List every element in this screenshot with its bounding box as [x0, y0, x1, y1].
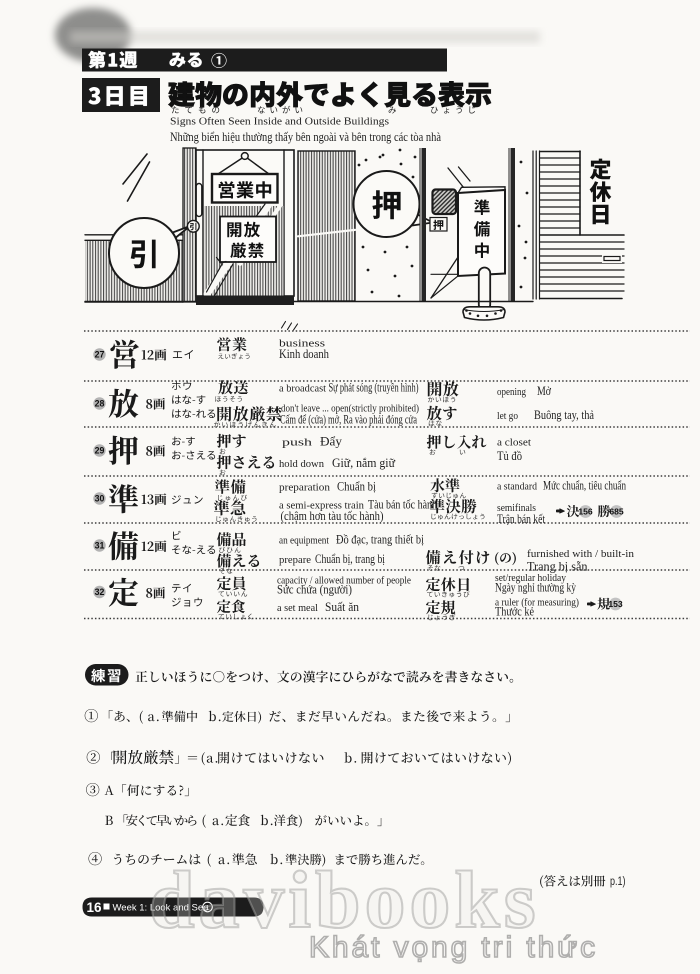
svg-text:156: 156	[578, 507, 593, 517]
svg-text:27: 27	[95, 350, 105, 360]
svg-text:Những biển hiệu thường thấy bê: Những biển hiệu thường thấy bên ngoài và…	[170, 130, 441, 144]
svg-text:p.1): p.1)	[610, 876, 626, 888]
svg-text:Sức chứa (người): Sức chứa (người)	[277, 583, 352, 597]
svg-text:a closet: a closet	[497, 437, 531, 449]
svg-text:preparation: preparation	[279, 482, 331, 494]
svg-text:furnished with / built-in: furnished with / built-in	[527, 548, 635, 560]
svg-text:hold down: hold down	[279, 458, 324, 470]
svg-text:153: 153	[608, 599, 623, 609]
svg-text:28: 28	[95, 399, 105, 409]
svg-text:an equipment: an equipment	[279, 535, 329, 547]
svg-text:Thước kẻ: Thước kẻ	[495, 605, 534, 619]
svg-text:Cấm để (cửa) mở, Ra vào phải đ: Cấm để (cửa) mở, Ra vào phải đóng cửa	[280, 413, 417, 427]
svg-text:Ngày nghỉ thường kỳ: Ngày nghỉ thường kỳ	[495, 581, 577, 595]
svg-text:Buông tay, thả: Buông tay, thả	[534, 408, 594, 422]
svg-text:32: 32	[95, 587, 105, 597]
svg-text:Mở: Mở	[537, 384, 551, 398]
svg-text:685: 685	[609, 507, 624, 517]
svg-text:Tủ đồ: Tủ đồ	[497, 449, 522, 463]
svg-text:Trận bán kết: Trận bán kết	[497, 512, 545, 526]
svg-text:(chậm hơn tàu tốc hành): (chậm hơn tàu tốc hành)	[281, 509, 384, 523]
svg-text:Mức chuẩn, tiêu chuẩn: Mức chuẩn, tiêu chuẩn	[543, 479, 626, 493]
svg-text:Sự phát sóng (truyền hình): Sự phát sóng (truyền hình)	[329, 381, 419, 395]
svg-text:29: 29	[95, 446, 105, 456]
svg-text:a broadcast: a broadcast	[279, 383, 326, 395]
svg-text:prepare: prepare	[279, 554, 311, 566]
svg-text:Kinh doanh: Kinh doanh	[279, 347, 329, 361]
svg-text:31: 31	[95, 541, 105, 551]
svg-text:Chuẩn bị: Chuẩn bị	[337, 480, 377, 494]
svg-text:Chuẩn bị, trang bị: Chuẩn bị, trang bị	[315, 552, 385, 566]
svg-text:16: 16	[87, 900, 103, 915]
svg-text:Đồ đạc, trang thiết bị: Đồ đạc, trang thiết bị	[336, 533, 425, 547]
svg-text:Giữ, nắm giữ: Giữ, nắm giữ	[332, 456, 395, 470]
svg-text:Suất ăn: Suất ăn	[325, 600, 359, 614]
svg-text:opening: opening	[497, 386, 526, 398]
svg-text:let go: let go	[497, 410, 518, 422]
svg-text:push: push	[282, 437, 313, 449]
svg-text:Signs Often Seen Inside and Ou: Signs Often Seen Inside and Outside Buil…	[170, 116, 389, 128]
svg-text:30: 30	[95, 494, 105, 504]
svg-text:Đẩy: Đẩy	[320, 435, 343, 449]
svg-text:a set meal: a set meal	[277, 602, 318, 614]
svg-text:a standard: a standard	[497, 481, 537, 493]
